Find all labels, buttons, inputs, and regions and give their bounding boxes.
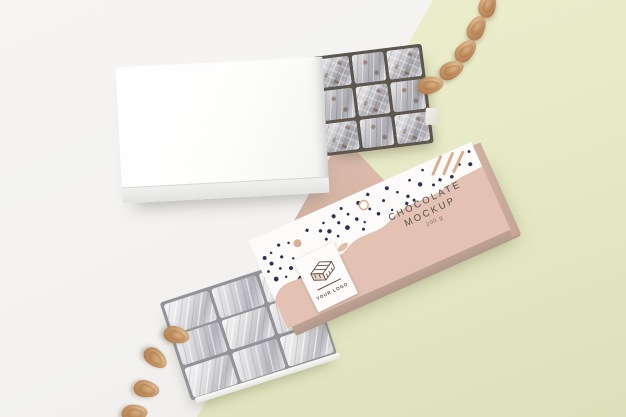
chocolate-bar-icon bbox=[304, 253, 341, 288]
blank-chocolate-box bbox=[116, 57, 330, 204]
foil-square bbox=[324, 120, 360, 153]
foil-square bbox=[386, 47, 422, 80]
foil-square bbox=[355, 83, 391, 116]
foil-square bbox=[359, 116, 395, 149]
photo-stage: CHOCOLATE MOCKUP 200 g YOUR LOGO bbox=[0, 0, 626, 417]
foil-wrapped-chocolate-top bbox=[312, 44, 433, 157]
foil-square bbox=[351, 51, 387, 84]
